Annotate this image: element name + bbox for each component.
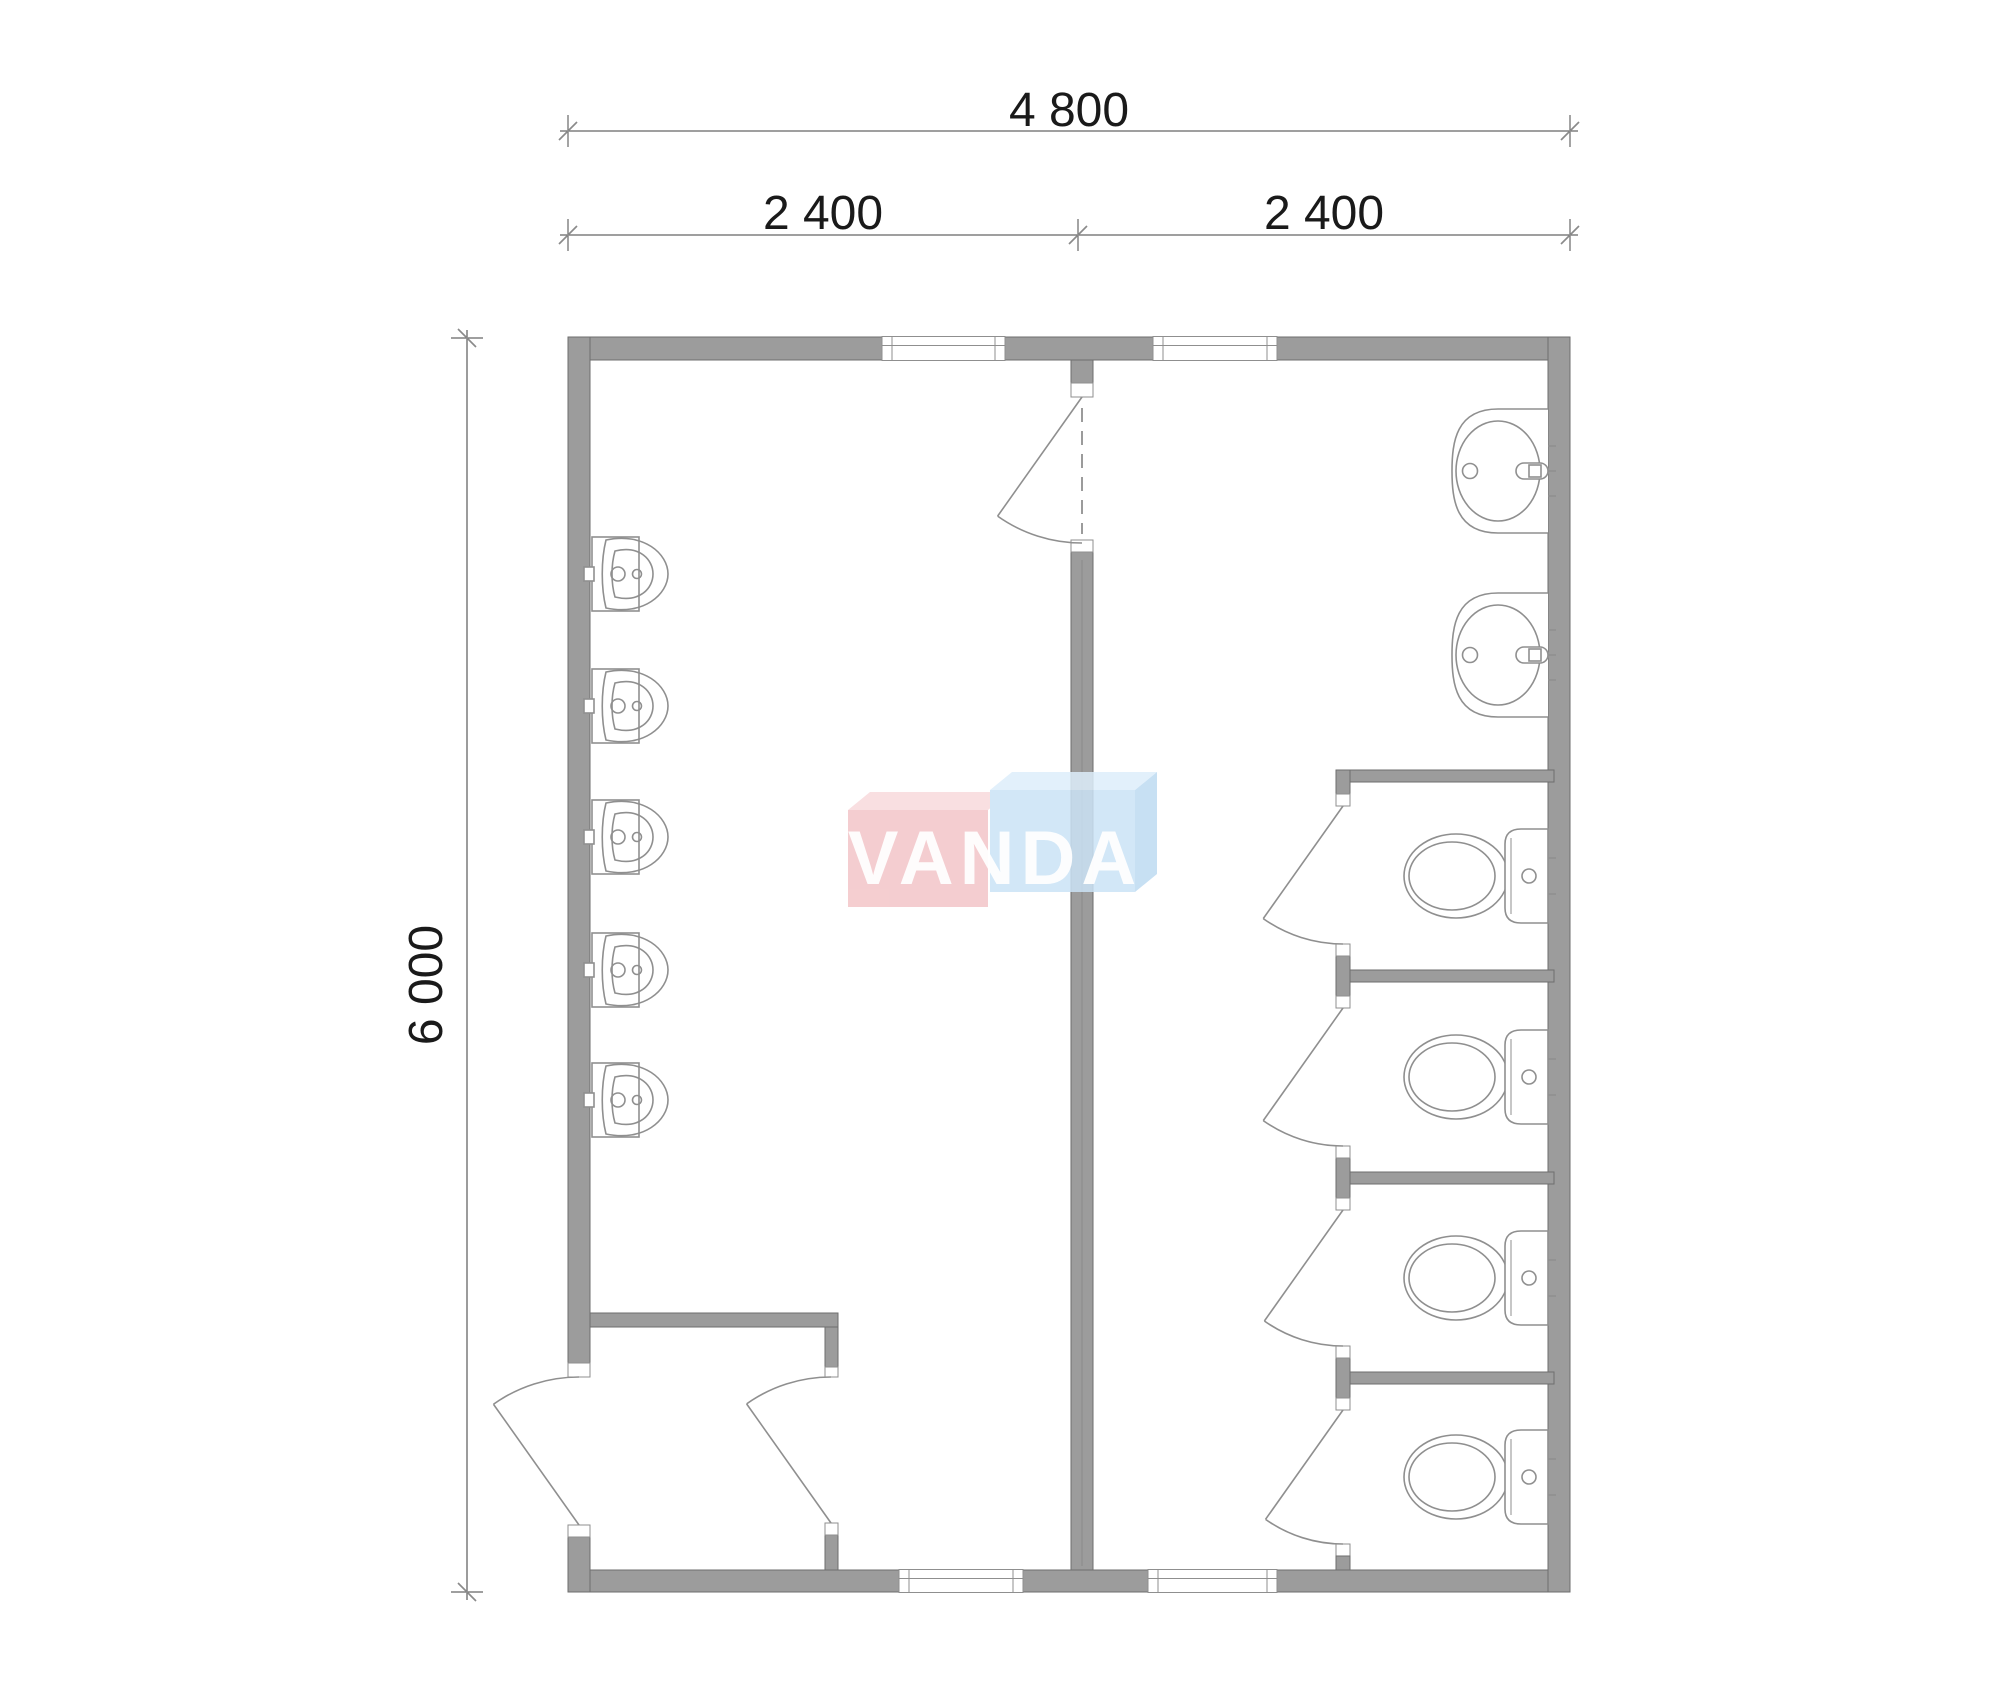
door-jamb [1336,1198,1350,1210]
door-jamb [1336,1146,1350,1158]
stall-door-swing [1263,806,1343,944]
stall-door-stub [1336,770,1350,794]
door-swing-arc [998,516,1082,543]
watermark-blue-top [990,772,1157,790]
toilet-flush-button [1522,869,1536,883]
door-leaf [1263,1008,1343,1121]
dimension-label-right-span: 2 400 [1264,187,1384,240]
stall-partition [1336,1172,1554,1184]
door-jamb [1071,383,1093,397]
door-leaf [493,1404,579,1525]
window [1153,337,1277,361]
exterior-wall-top [568,337,1570,360]
door-jamb [1336,1544,1350,1556]
door-jamb [568,1363,590,1377]
floor-plan: 4 800 2 400 2 400 6 000 VANDA [0,0,2000,1684]
door-jamb [1336,944,1350,956]
urinal-icon [584,537,668,611]
urinal-icon [584,800,668,874]
door-swing-arc [747,1377,831,1404]
door-jamb [1336,996,1350,1008]
toilet-flush-button [1522,1271,1536,1285]
door-leaf [1264,1210,1343,1321]
door-swing-arc [1263,919,1343,944]
watermark-pink-top [848,792,1010,810]
sink-icon [1452,593,1556,717]
stall-door-stub [1336,1158,1350,1198]
stall-partition [1336,1372,1554,1384]
center-door-swing [998,397,1082,543]
window [1148,1570,1277,1593]
vestibule-door-stub-top [825,1327,838,1367]
door-leaf [1263,806,1343,919]
stall-door-stub [1336,956,1350,996]
door-swing-arc [1266,1519,1343,1544]
stall-door-stub [1336,1556,1350,1570]
toilet-icon [1404,1030,1556,1124]
door-jamb [825,1523,838,1535]
window [882,337,1005,361]
door-jamb [568,1525,590,1537]
sink-icon [1452,409,1556,533]
door-swing-arc [1263,1121,1343,1146]
door-leaf [998,397,1082,516]
toilet-bowl-outer [1404,834,1508,918]
toilet-flush-button [1522,1070,1536,1084]
center-wall-stub [1071,360,1093,383]
urinal-bracket [584,567,594,581]
door-leaf [747,1404,831,1523]
toilet-bowl-outer [1404,1236,1508,1320]
stall-partition [1336,770,1554,782]
door-swing-arc [493,1377,579,1404]
vestibule-door-stub-bottom [825,1535,838,1570]
entrance-opening [567,1377,591,1525]
door-leaf [1266,1410,1343,1519]
stall-partition [1336,970,1554,982]
watermark-text: VANDA [848,816,1143,901]
window [899,1570,1023,1593]
exterior-wall-bottom [568,1570,1570,1592]
door-swing-arc [1264,1321,1343,1346]
drawing-sheet: 4 800 2 400 2 400 6 000 VANDA [0,0,2000,1684]
urinal-icon [584,933,668,1007]
exterior-wall-right [1548,337,1570,1592]
toilet-flush-button [1522,1470,1536,1484]
door-jamb [825,1367,838,1377]
urinal-icon [584,1063,668,1137]
door-jamb [1336,794,1350,806]
vestibule-wall [590,1313,838,1327]
entrance-door-swing [493,1377,579,1525]
toilet-icon [1404,829,1556,923]
dimension-label-total-width: 4 800 [1009,84,1129,137]
sink-faucet-handle [1529,649,1541,661]
door-jamb [1071,540,1093,552]
vestibule-door-swing [747,1377,831,1523]
building-plan [493,337,1570,1593]
toilet-bowl-outer [1404,1035,1508,1119]
urinal-bracket [584,963,594,977]
stall-door-stub [1336,1358,1350,1398]
urinal-bracket [584,830,594,844]
stall-door-swing [1264,1210,1343,1346]
urinal-bracket [584,1093,594,1107]
door-jamb [1336,1346,1350,1358]
stall-door-swing [1263,1008,1343,1146]
door-jamb [1336,1398,1350,1410]
urinal-icon [584,669,668,743]
stall-door-swing [1266,1410,1343,1544]
toilet-bowl-outer [1404,1435,1508,1519]
toilet-icon [1404,1430,1556,1524]
sink-faucet-handle [1529,465,1541,477]
urinal-bracket [584,699,594,713]
dimension-label-height: 6 000 [400,925,453,1045]
toilet-icon [1404,1231,1556,1325]
dimension-label-left-span: 2 400 [763,187,883,240]
